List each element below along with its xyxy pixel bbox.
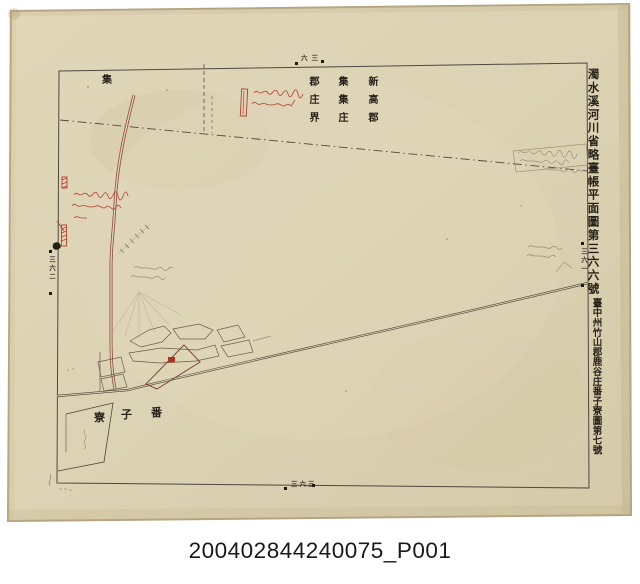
sheet-join-marker [581, 284, 584, 287]
edge-mark-right: 三六一 [579, 248, 586, 274]
sheet-join-marker [49, 292, 52, 295]
sheet-join-marker [49, 250, 52, 253]
sheet-join-marker [312, 484, 315, 487]
sheet-join-marker [321, 60, 324, 63]
map-scan-graphics [0, 0, 640, 584]
sheet-join-marker [284, 487, 287, 490]
boundary-label-village: 集集庄 [336, 76, 346, 130]
edge-mark-left: 三六二 [47, 256, 54, 282]
sheet-join-marker [295, 62, 298, 65]
edge-mark-top: 六三 [301, 56, 322, 63]
boundary-label-district: 新高郡 [366, 76, 376, 130]
archive-id-caption: 200402844240075_P001 [0, 540, 640, 563]
sheet-title-main: 濁水溪河川省略臺帳平面圖第三六六號 [586, 68, 598, 296]
corner-place-label: 集 [102, 76, 112, 86]
archival-scan-page: 濁水溪河川省略臺帳平面圖第三六六號 臺中州竹山郡鹿谷庄番子寮圖第七號 新高郡 集… [0, 0, 640, 584]
hamlet-label-char: 寮 [94, 413, 105, 424]
sheet-title-sub: 臺中州竹山郡鹿谷庄番子寮圖第七號 [591, 298, 601, 455]
hamlet-label-char: 子 [121, 410, 132, 421]
boundary-label-border: 郡庄界 [307, 76, 317, 130]
house-marker-red [168, 357, 175, 363]
sheet-join-marker [581, 242, 584, 245]
hamlet-label-char: 番 [151, 408, 162, 419]
